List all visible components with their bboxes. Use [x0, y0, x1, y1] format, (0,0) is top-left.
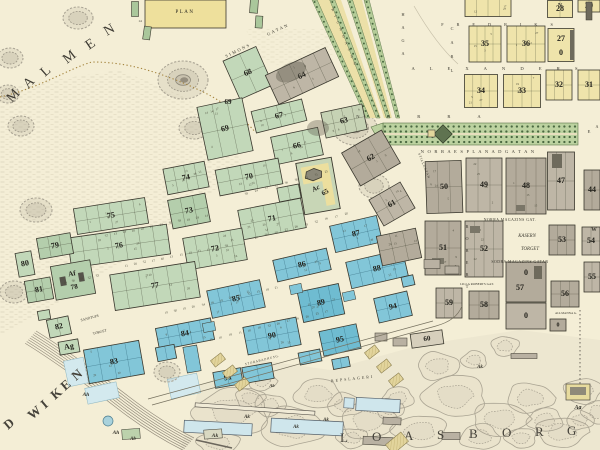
svg-text:KASERN: KASERN: [517, 234, 536, 239]
svg-text:R: R: [451, 54, 454, 59]
svg-text:R: R: [466, 224, 469, 229]
svg-text:TORGET: TORGET: [521, 247, 539, 252]
svg-text:W: W: [591, 227, 597, 233]
svg-text:Ag: Ag: [63, 341, 74, 352]
svg-text:S: S: [437, 427, 444, 442]
svg-text:22: 22: [481, 238, 485, 242]
svg-text:O: O: [372, 429, 381, 444]
svg-text:L: L: [340, 430, 348, 445]
svg-text:44: 44: [588, 185, 596, 194]
svg-text:77: 77: [150, 280, 159, 290]
svg-text:21: 21: [469, 101, 473, 105]
svg-text:0: 0: [524, 268, 528, 277]
svg-text:15: 15: [474, 44, 478, 48]
svg-text:E: E: [588, 129, 591, 134]
svg-text:47: 47: [557, 176, 565, 185]
svg-text:L: L: [451, 68, 454, 73]
svg-text:Ah: Ah: [82, 392, 90, 398]
svg-text:55: 55: [588, 272, 596, 281]
svg-text:G: G: [401, 38, 404, 43]
svg-text:B: B: [469, 426, 478, 441]
svg-text:31: 31: [585, 80, 593, 89]
svg-text:32: 32: [555, 80, 563, 89]
svg-text:27: 27: [517, 90, 521, 94]
svg-text:58: 58: [480, 300, 488, 309]
svg-text:Ab: Ab: [129, 437, 136, 442]
svg-text:Ak: Ak: [211, 433, 219, 439]
svg-text:Ak: Ak: [476, 365, 483, 370]
svg-text:15: 15: [526, 193, 530, 197]
svg-text:50: 50: [440, 182, 448, 191]
svg-text:Ab: Ab: [268, 383, 275, 388]
svg-text:22: 22: [473, 162, 477, 166]
svg-text:59: 59: [445, 298, 453, 307]
svg-text:12: 12: [529, 41, 533, 45]
svg-text:19: 19: [516, 82, 520, 86]
svg-text:52: 52: [480, 244, 488, 253]
svg-text:A: A: [450, 40, 453, 45]
svg-text:O: O: [465, 236, 468, 241]
svg-text:Ak: Ak: [322, 418, 329, 423]
svg-text:0: 0: [557, 322, 560, 328]
svg-text:R: R: [535, 424, 544, 439]
svg-text:Ah: Ah: [112, 430, 120, 436]
svg-text:54: 54: [587, 236, 595, 245]
svg-text:57: 57: [516, 283, 524, 292]
svg-text:Ak: Ak: [243, 415, 250, 420]
svg-text:R: R: [466, 272, 469, 277]
svg-text:35: 35: [481, 39, 489, 48]
svg-text:0: 0: [559, 48, 563, 57]
svg-text:22: 22: [474, 257, 478, 261]
svg-text:E: E: [466, 260, 469, 265]
svg-text:H: H: [401, 12, 404, 17]
svg-text:A L E X A N D E R S: A L E X A N D E R S: [411, 66, 584, 71]
svg-text:A: A: [596, 124, 599, 129]
svg-text:56: 56: [561, 289, 569, 298]
svg-text:48: 48: [522, 181, 530, 190]
svg-text:80: 80: [20, 258, 29, 268]
svg-text:14: 14: [138, 19, 142, 23]
svg-text:NORRA MAGAZINS GAT.: NORRA MAGAZINS GAT.: [484, 218, 537, 222]
svg-text:25: 25: [477, 172, 481, 176]
svg-text:15: 15: [534, 204, 538, 208]
svg-text:53: 53: [558, 235, 566, 244]
svg-text:73: 73: [184, 205, 194, 215]
svg-text:69: 69: [225, 98, 233, 106]
svg-text:N O R R A E S P L A N A D: N O R R A E S P L A N A D G A T A N: [421, 149, 536, 154]
svg-text:PLAN: PLAN: [175, 10, 194, 15]
svg-text:0: 0: [524, 311, 528, 320]
svg-text:F R E D R I K S: F R E D R I K S: [441, 22, 559, 27]
svg-text:N: N: [558, 3, 563, 9]
svg-text:51: 51: [439, 243, 447, 252]
svg-text:G: G: [567, 423, 576, 438]
svg-text:A: A: [401, 25, 404, 30]
svg-text:LILLA ROBERTS GAT.: LILLA ROBERTS GAT.: [460, 282, 494, 286]
svg-text:ALLMANNA G.: ALLMANNA G.: [555, 311, 577, 315]
svg-text:N O R R A: N O R R A: [356, 114, 493, 119]
svg-text:O: O: [502, 425, 511, 440]
svg-text:27: 27: [479, 98, 483, 102]
svg-text:A: A: [401, 51, 404, 56]
svg-text:Ak: Ak: [292, 425, 299, 430]
svg-text:12: 12: [474, 10, 478, 14]
svg-text:81: 81: [34, 284, 43, 294]
svg-text:79: 79: [50, 240, 59, 250]
svg-text:17: 17: [503, 5, 507, 9]
svg-text:SODRA MAGAZINS GATAN: SODRA MAGAZINS GATAN: [491, 260, 548, 264]
svg-text:26: 26: [485, 185, 489, 189]
svg-text:27: 27: [535, 31, 539, 35]
svg-text:Aa: Aa: [573, 405, 581, 411]
svg-text:34: 34: [477, 86, 485, 95]
svg-text:C: C: [451, 26, 454, 31]
svg-text:27: 27: [557, 34, 565, 43]
svg-text:B: B: [466, 248, 469, 253]
